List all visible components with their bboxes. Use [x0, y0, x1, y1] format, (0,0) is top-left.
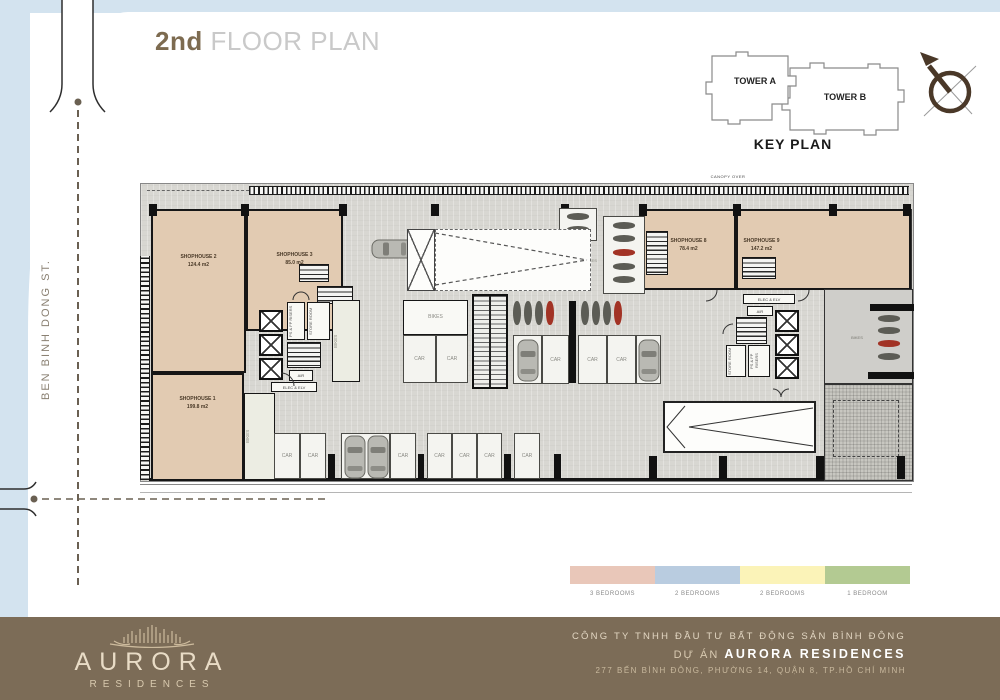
car-stall-occupied	[341, 433, 390, 479]
car-stall-label: CAR	[391, 453, 415, 459]
motorbike-icon	[581, 301, 589, 325]
stairs-icon	[736, 317, 767, 344]
bikes-label: BIKES	[245, 394, 274, 479]
store-room: STORE ROOM	[307, 302, 330, 340]
car-stall: CAR	[274, 433, 300, 479]
elec-elv-label: ELEC & ELV	[744, 297, 794, 302]
legend-labels: 3 BEDROOMS 2 BEDROOMS 2 BEDROOMS 1 BEDRO…	[570, 591, 910, 597]
central-stairs-icon	[472, 294, 508, 389]
shophouse-2-room: SHOPHOUSE 2 124.4 m2	[151, 209, 246, 373]
motorbike-icon	[603, 301, 611, 325]
red-motorbike-icon	[613, 249, 635, 256]
car-stall: CAR	[452, 433, 477, 479]
car-stall: CAR	[436, 335, 468, 383]
wall-column	[328, 454, 335, 479]
footer-band: AURORA RESIDENCES CÔNG TY TNHH ĐẦU TƯ BẤ…	[0, 617, 1000, 700]
car-stall: CAR	[403, 335, 436, 383]
brand-subtitle: RESIDENCES	[62, 679, 242, 690]
page-title: 2nd FLOOR PLAN	[155, 26, 380, 57]
street-name: BEN BINH DONG ST.	[40, 170, 52, 400]
car-stall-label: CAR	[579, 357, 606, 363]
ramp-landing	[407, 229, 435, 291]
bikes-label: BIKES	[404, 314, 467, 320]
key-plan: TOWER A TOWER B KEY PLAN	[698, 44, 916, 156]
shophouse-1-room: SHOPHOUSE 1 199.8 m2	[151, 373, 244, 481]
store-room-label: STORE ROOM	[727, 346, 745, 376]
bikes-area: BIKES	[824, 289, 913, 384]
shophouse-3-name: SHOPHOUSE 3	[248, 251, 341, 259]
bikes-label: BIKES	[847, 335, 867, 340]
air-room: AIR	[747, 306, 773, 316]
motorbike-icon	[613, 263, 635, 270]
motorbike-icon	[567, 213, 589, 220]
car-stall-label: CAR	[301, 453, 325, 459]
ramp-over-dashed	[435, 229, 591, 291]
wall-column	[719, 456, 727, 479]
motorbike-icon	[524, 301, 532, 325]
shophouse-9-name: SHOPHOUSE 9	[676, 237, 847, 245]
car-icon	[638, 339, 660, 382]
floor-plan: CANOPY OVER SHOPHOUSE 2 124.4 m2 SHOPHOU…	[140, 183, 914, 482]
car-stall-occupied	[513, 335, 542, 384]
wall-column	[903, 204, 911, 216]
key-plan-towers-outline	[698, 44, 916, 136]
legend-swatch-1-bedroom	[825, 566, 910, 584]
wall-column	[733, 204, 741, 216]
brand-logo: AURORA RESIDENCES	[62, 621, 242, 690]
wall-column	[149, 204, 157, 216]
air-room: AIR	[289, 370, 313, 381]
car-stall: CAR	[477, 433, 502, 479]
wall-column	[897, 456, 905, 479]
car-stall: CAR	[514, 433, 540, 479]
project-prefix: DỰ ÁN	[674, 649, 720, 661]
bikes-label: BIKES	[333, 301, 359, 381]
tower-b-label: TOWER B	[810, 92, 880, 102]
wall-column	[649, 456, 657, 479]
bikes-room: BIKES	[403, 300, 468, 335]
company-name: CÔNG TY TNHH ĐẦU TƯ BẤT ĐỘNG SẢN BÌNH ĐÔ…	[572, 631, 906, 642]
car-stall-label: CAR	[543, 357, 568, 363]
motorbike-icon	[878, 353, 900, 360]
wall-column	[339, 204, 347, 216]
legend-swatch-2-bedrooms-blue	[655, 566, 740, 584]
red-motorbike-icon	[546, 301, 554, 325]
brand-name: AURORA	[62, 648, 242, 677]
sidewalk-line	[140, 492, 912, 493]
motorbike-icon	[613, 276, 635, 283]
footer-company-block: CÔNG TY TNHH ĐẦU TƯ BẤT ĐỘNG SẢN BÌNH ĐÔ…	[572, 631, 906, 675]
motorbike-parking-row	[581, 301, 633, 334]
wall-column	[554, 454, 561, 479]
car-icon	[517, 339, 539, 382]
car-stall-label: CAR	[478, 453, 501, 459]
elec-elv-room: ELEC & ELV	[271, 382, 317, 392]
legend-label: 1 BEDROOM	[825, 591, 910, 597]
motorbike-icon	[513, 301, 521, 325]
project-name: AURORA RESIDENCES	[724, 647, 906, 661]
car-stall: CAR	[300, 433, 326, 479]
air-label: AIR	[290, 373, 312, 378]
ps-fp-risers-label: PS & FP RISERS	[749, 346, 769, 376]
car-stall-occupied	[636, 335, 661, 384]
car-icon	[367, 435, 389, 479]
motorbike-parking-column	[878, 315, 900, 360]
shophouse-2-area: 124.4 m2	[153, 261, 244, 269]
car-stall-label: CAR	[437, 356, 467, 362]
wall-column	[868, 372, 914, 379]
stairs-icon	[646, 231, 668, 275]
shophouse-9-room: SHOPHOUSE 9 147.2 m2	[736, 209, 911, 290]
legend-swatch-2-bedrooms-yellow	[740, 566, 825, 584]
motorbike-icon	[878, 327, 900, 334]
crown-skyline-icon	[62, 621, 242, 648]
project-address: 277 BẾN BÌNH ĐÔNG, PHƯỜNG 14, QUẬN 8, TP…	[572, 666, 906, 675]
legend-label: 2 BEDROOMS	[740, 591, 825, 597]
car-stall-label: CAR	[428, 453, 451, 459]
page-title-rest: FLOOR PLAN	[210, 26, 380, 56]
key-plan-title: KEY PLAN	[718, 136, 868, 152]
motorbike-icon	[535, 301, 543, 325]
bikes-room: BIKES	[332, 300, 360, 382]
stairs-icon	[287, 342, 321, 368]
wall-column	[504, 454, 511, 479]
north-compass-icon	[916, 46, 982, 120]
shophouse-1-name: SHOPHOUSE 1	[153, 395, 242, 403]
dashed-outline	[833, 400, 899, 457]
car-stall: CAR	[542, 335, 569, 384]
legend-swatch-3-bedrooms	[570, 566, 655, 584]
car-stall-label: CAR	[275, 453, 299, 459]
red-motorbike-icon	[878, 340, 900, 347]
canopy-strip	[249, 186, 909, 195]
store-room-label: STORE ROOM	[308, 303, 329, 339]
car-stall: CAR	[607, 335, 636, 384]
wall-column	[639, 204, 647, 216]
wall-column	[431, 204, 439, 216]
red-motorbike-icon	[614, 301, 622, 325]
project-line: DỰ ÁN AURORA RESIDENCES	[572, 647, 906, 661]
elevator-icon	[775, 357, 799, 379]
page-title-prefix: 2nd	[155, 26, 203, 56]
legend-label: 3 BEDROOMS	[570, 591, 655, 597]
parking-ramp	[663, 401, 816, 453]
bikes-room: BIKES	[244, 393, 275, 480]
car-stall: CAR	[578, 335, 607, 384]
elevator-icon	[775, 334, 799, 356]
brochure-page: BEN BINH DONG ST. 2nd FLOOR PLAN TOWER A…	[0, 0, 1000, 700]
legend-label: 2 BEDROOMS	[655, 591, 740, 597]
stairs-icon	[299, 264, 329, 282]
car-stall: CAR	[390, 433, 416, 479]
motorbike-icon	[613, 235, 635, 242]
tower-a-label: TOWER A	[720, 76, 790, 86]
car-stall-label: CAR	[608, 357, 635, 363]
elec-elv-room: ELEC & ELV	[743, 294, 795, 304]
ps-fp-risers-room: PS & FP RISERS	[287, 302, 305, 340]
wall-column	[418, 454, 424, 479]
sidewalk-line	[140, 484, 912, 485]
elevator-icon	[259, 358, 283, 380]
car-stall-label: CAR	[453, 453, 476, 459]
boundary-dashed-line	[147, 190, 249, 191]
elevator-icon	[259, 310, 283, 332]
motorbike-parking-row	[513, 301, 565, 334]
elevator-icon	[775, 310, 799, 332]
ps-fp-risers-label: PS & FP RISERS	[288, 303, 304, 339]
motorbike-icon	[878, 315, 900, 322]
elec-elv-label: ELEC & ELV	[272, 385, 316, 390]
motorbike-icon	[592, 301, 600, 325]
wall-column	[569, 301, 576, 383]
car-stall: CAR	[427, 433, 452, 479]
shophouse-2-name: SHOPHOUSE 2	[153, 253, 244, 261]
elevator-icon	[259, 334, 283, 356]
car-stall-label: CAR	[404, 356, 435, 362]
shophouse-1-area: 199.8 m2	[153, 403, 242, 411]
air-label: AIR	[748, 309, 772, 314]
motorbike-icon	[613, 222, 635, 229]
unit-type-legend	[570, 566, 910, 584]
wall-column	[816, 456, 824, 479]
canopy-label: CANOPY OVER	[678, 174, 778, 179]
car-icon	[344, 435, 366, 479]
shophouse-9-area: 147.2 m2	[676, 245, 847, 253]
ps-fp-risers-room: PS & FP RISERS	[748, 345, 770, 377]
store-room: STORE ROOM	[726, 345, 746, 377]
motorbike-stall	[603, 216, 645, 294]
car-stall-label: CAR	[515, 453, 539, 459]
wall-column	[870, 304, 914, 311]
wall-column	[829, 204, 837, 216]
stairs-icon	[742, 257, 776, 279]
left-boundary-hatch	[140, 256, 150, 480]
wall-column	[241, 204, 249, 216]
